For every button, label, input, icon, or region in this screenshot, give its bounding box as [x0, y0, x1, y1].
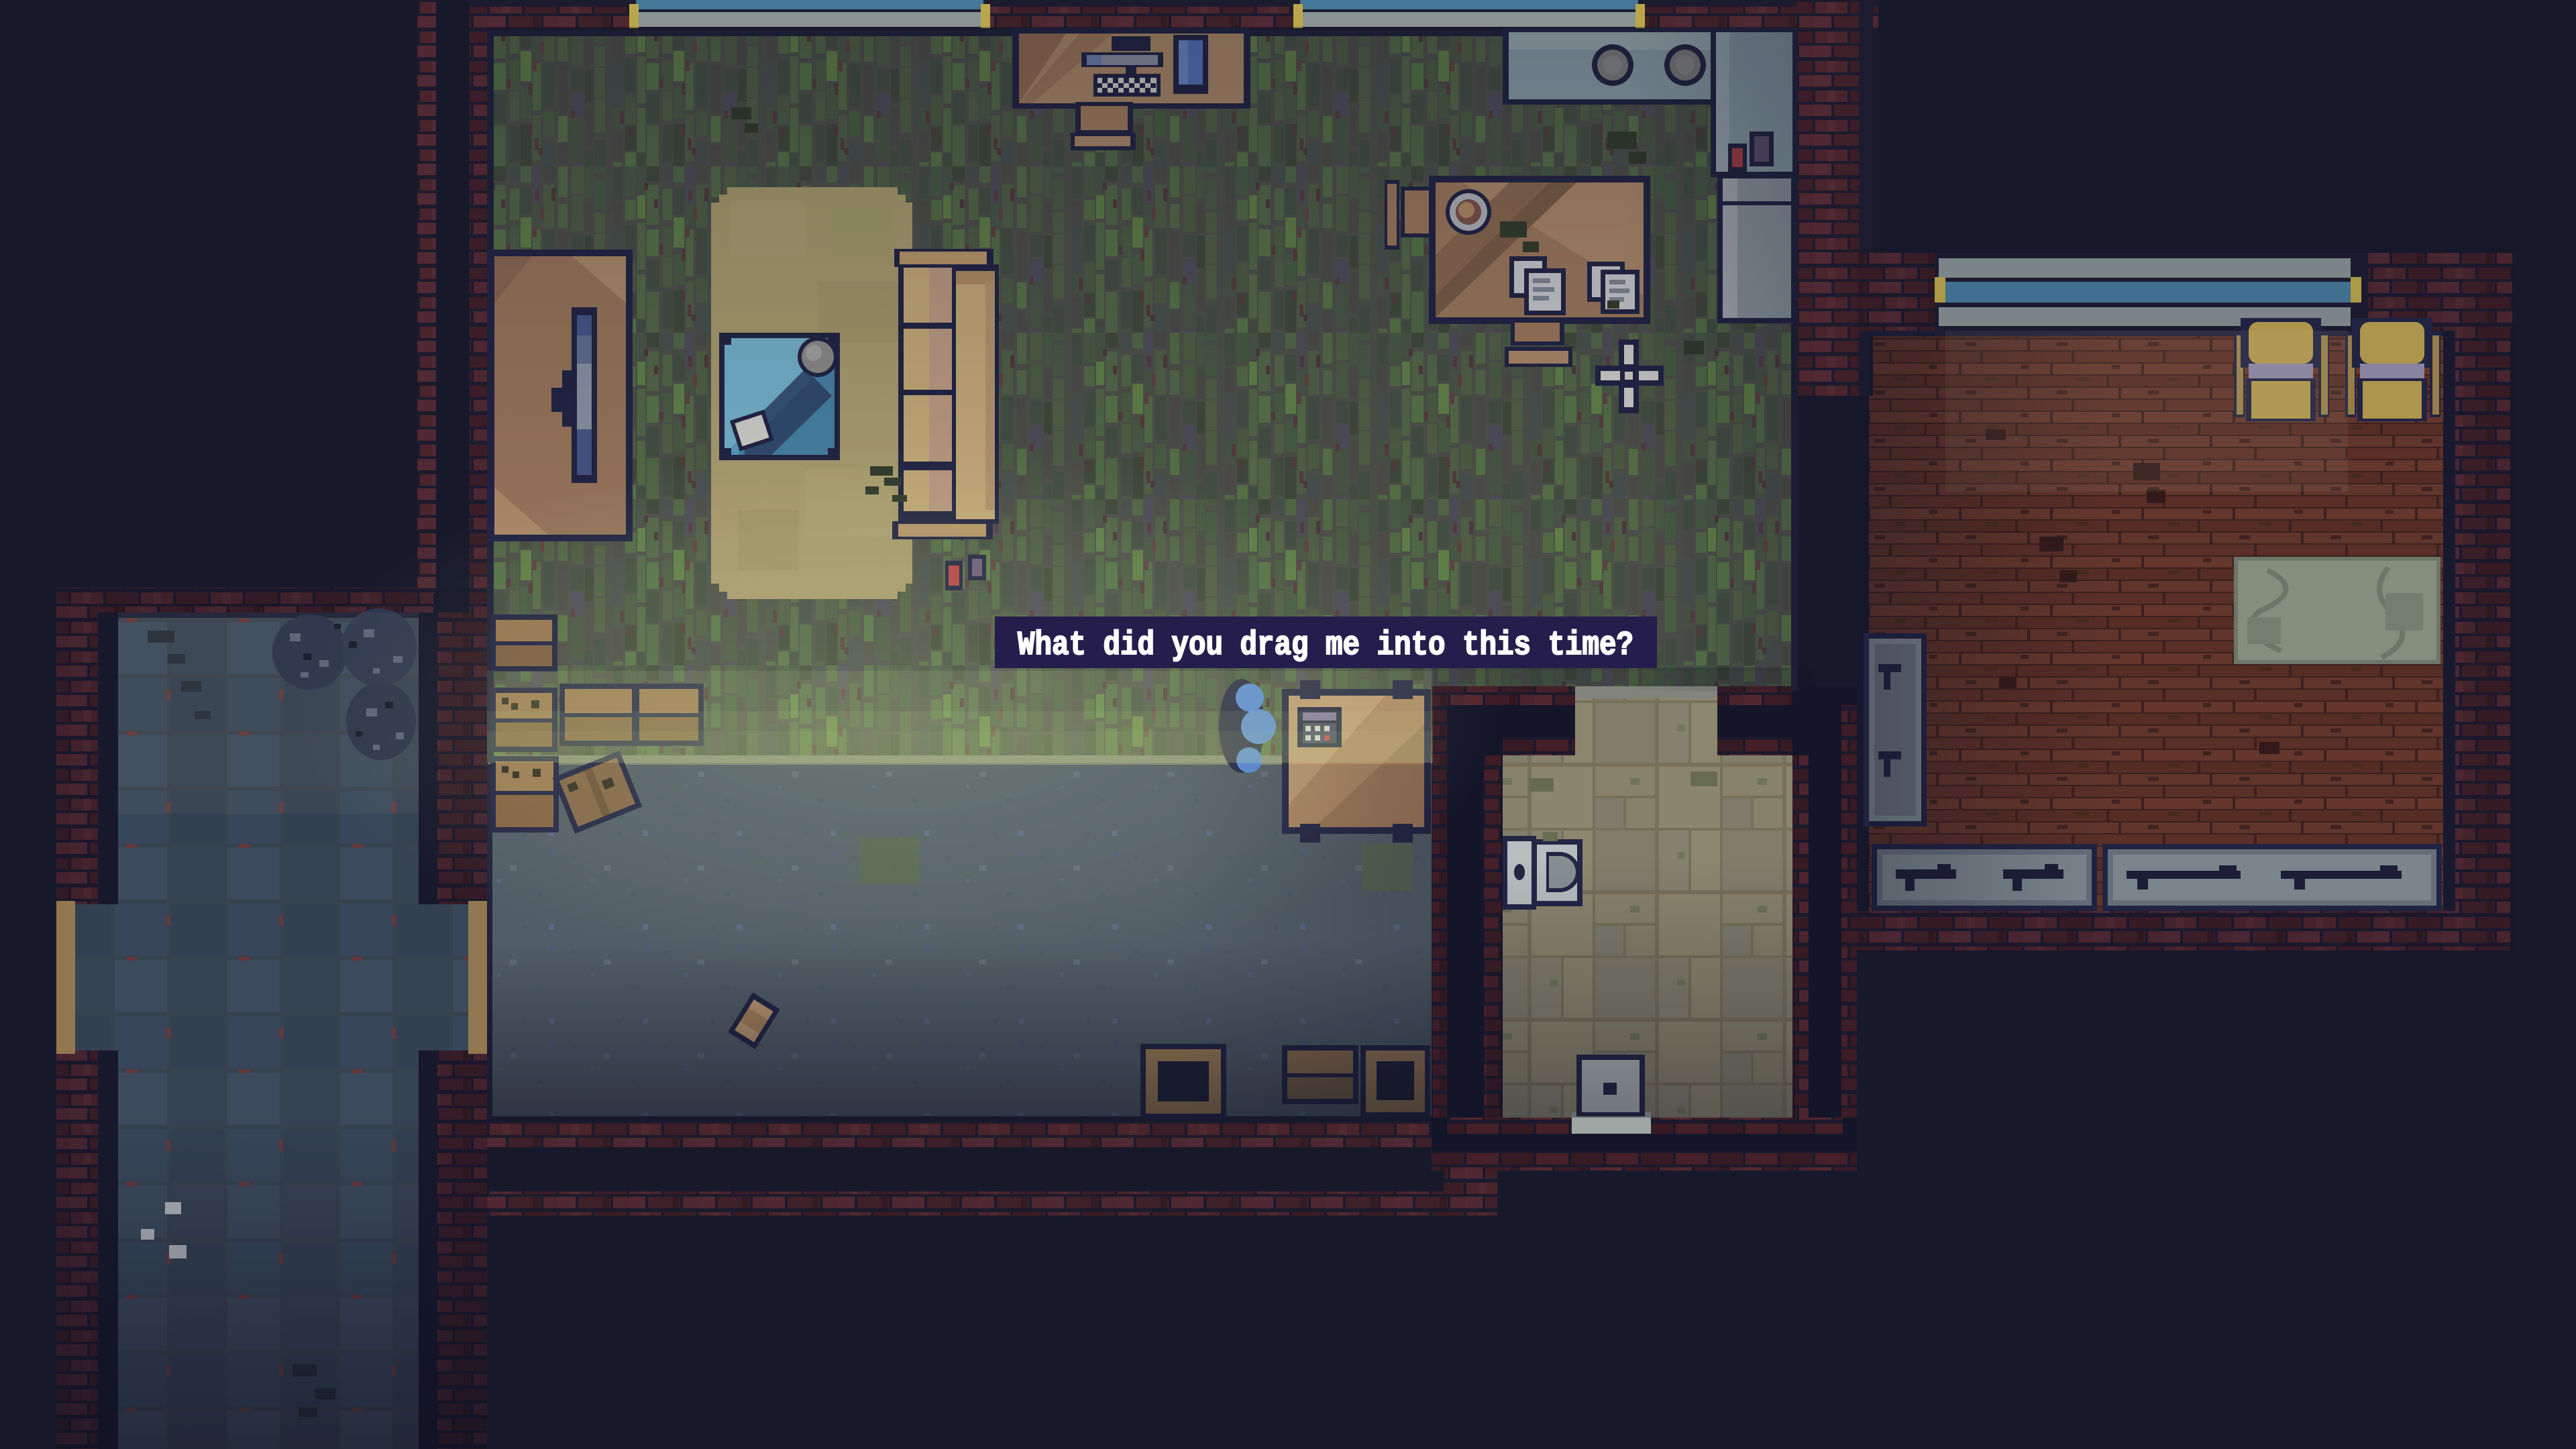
svg-text:What did you drag me into this: What did you drag me into this time? — [1018, 627, 1633, 665]
